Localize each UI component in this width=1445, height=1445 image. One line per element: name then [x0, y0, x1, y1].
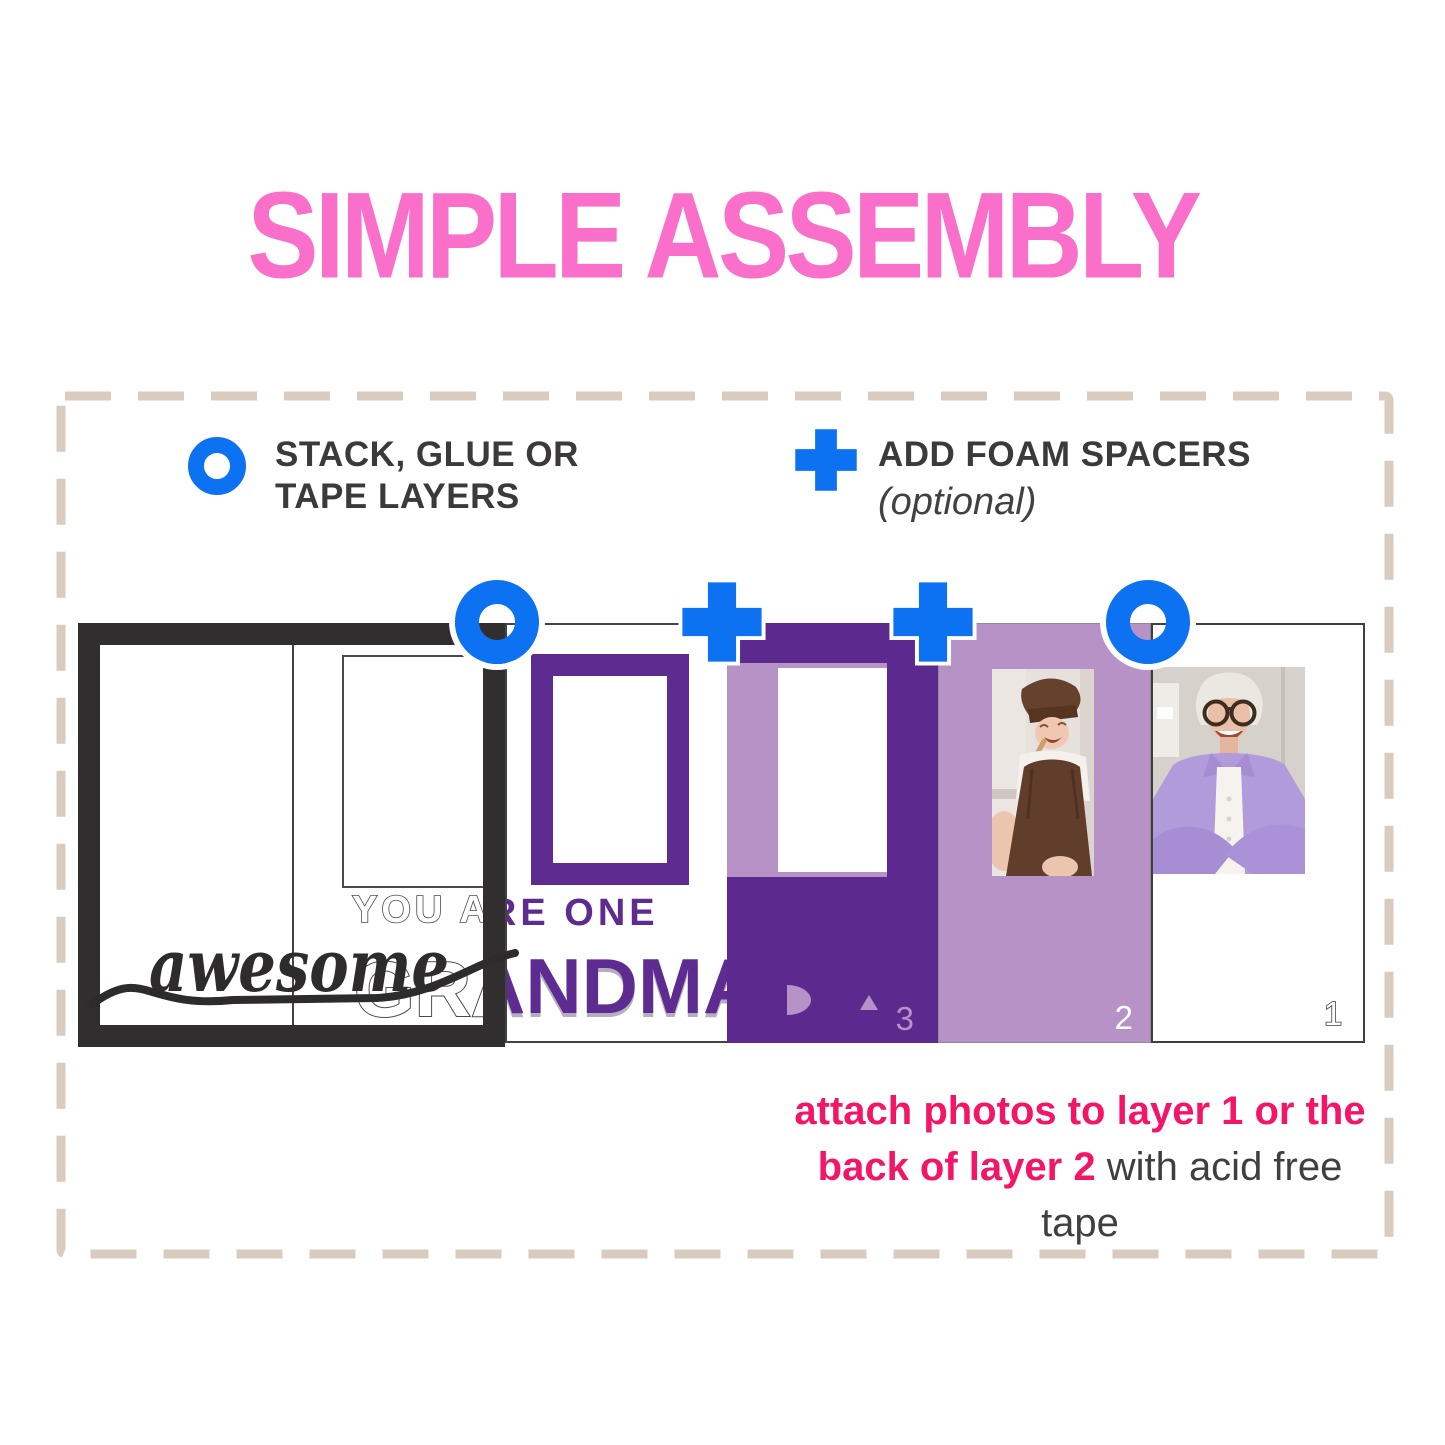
legend-foam-optional: (optional) [878, 481, 1036, 524]
ring-icon [188, 437, 246, 495]
assembly-instructions-graphic: SIMPLE ASSEMBLY STACK, GLUE OR TAPE LAYE… [0, 0, 1445, 1445]
letter-cutout-bit [787, 985, 811, 1015]
ring-icon [455, 580, 539, 664]
layer-card-3: 3 [727, 623, 938, 1043]
caption-line-2: back of layer 2 with acid free tape [790, 1139, 1370, 1251]
layer-card-1: 1 [1151, 623, 1365, 1043]
layer2-photo-window [992, 669, 1094, 876]
svg-text:1: 1 [1324, 995, 1342, 1032]
plus-icon [889, 578, 977, 666]
grandma-photo [1153, 667, 1305, 874]
legend-foam-label: ADD FOAM SPACERS [878, 434, 1251, 476]
plus-icon [794, 428, 858, 492]
layer2-number: 2 [1115, 1001, 1133, 1034]
layer3-number: 3 [896, 1002, 914, 1035]
page-title: SIMPLE ASSEMBLY [0, 168, 1445, 302]
svg-text:awesome: awesome [149, 923, 449, 1008]
photo-attach-caption: attach photos to layer 1 or the back of … [790, 1083, 1370, 1251]
layer3-window [778, 668, 887, 872]
letter-cutout-bit [860, 995, 878, 1010]
layer1-number: 1 [1313, 991, 1353, 1035]
purple-name-word: GRANDMA [505, 941, 759, 1032]
layer-card-2: 2 [938, 623, 1151, 1043]
caption-line-1: attach photos to layer 1 or the [790, 1083, 1370, 1139]
ring-icon [1106, 580, 1190, 664]
purple-photo-frame [531, 654, 689, 885]
legend-stack-label: STACK, GLUE OR TAPE LAYERS [275, 434, 579, 518]
awesome-script: awesome [85, 903, 530, 1018]
child-photo [992, 669, 1094, 876]
plus-icon [678, 578, 766, 666]
